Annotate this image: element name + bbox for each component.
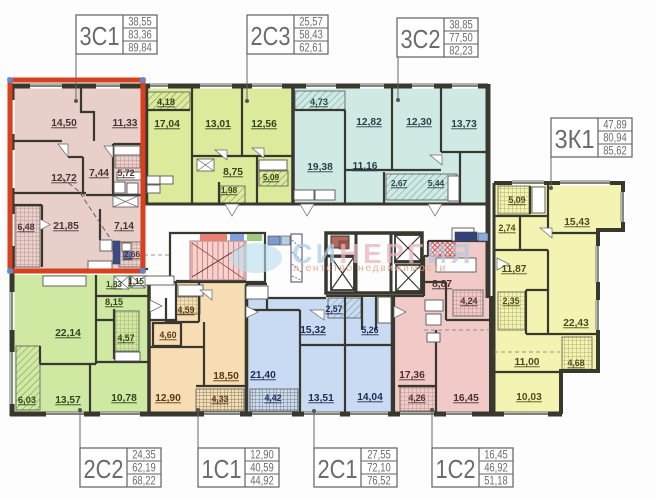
- svg-text:89,84: 89,84: [128, 43, 152, 55]
- svg-text:2C1: 2C1: [318, 454, 358, 484]
- svg-text:1,83: 1,83: [106, 280, 122, 289]
- svg-text:7,44: 7,44: [89, 168, 109, 179]
- svg-text:2C2: 2C2: [84, 454, 124, 484]
- svg-text:15,43: 15,43: [564, 217, 590, 228]
- svg-text:77,50: 77,50: [449, 33, 473, 45]
- svg-text:25,57: 25,57: [299, 17, 323, 29]
- svg-text:11,33: 11,33: [113, 118, 138, 129]
- svg-text:22,43: 22,43: [563, 318, 589, 329]
- svg-text:72,10: 72,10: [367, 463, 391, 475]
- svg-text:5,09: 5,09: [508, 195, 525, 205]
- svg-text:13,01: 13,01: [205, 119, 231, 130]
- svg-text:38,85: 38,85: [449, 20, 473, 32]
- svg-text:8,15: 8,15: [105, 297, 123, 307]
- svg-text:46,92: 46,92: [484, 463, 508, 475]
- svg-text:1,15: 1,15: [128, 277, 144, 286]
- svg-text:2,57: 2,57: [325, 304, 342, 314]
- svg-text:16,45: 16,45: [453, 393, 479, 404]
- svg-text:6,48: 6,48: [17, 222, 34, 232]
- svg-text:7,14: 7,14: [114, 221, 134, 232]
- svg-text:83,36: 83,36: [128, 30, 152, 42]
- svg-text:19,38: 19,38: [307, 162, 333, 173]
- svg-text:18,50: 18,50: [213, 371, 239, 382]
- svg-text:4,24: 4,24: [460, 296, 477, 306]
- svg-text:82,23: 82,23: [449, 46, 473, 58]
- svg-text:12,90: 12,90: [250, 450, 274, 462]
- svg-text:12,90: 12,90: [155, 393, 181, 404]
- svg-text:12,56: 12,56: [251, 119, 277, 130]
- svg-text:12,82: 12,82: [356, 117, 382, 128]
- svg-text:3C1: 3C1: [80, 21, 120, 51]
- svg-text:8,87: 8,87: [432, 279, 452, 290]
- svg-text:47,89: 47,89: [603, 120, 627, 132]
- svg-text:4,68: 4,68: [567, 358, 584, 368]
- svg-text:12,72: 12,72: [51, 173, 77, 184]
- svg-text:13,57: 13,57: [55, 395, 81, 406]
- svg-text:4,33: 4,33: [211, 394, 228, 404]
- svg-text:27,55: 27,55: [367, 450, 391, 462]
- svg-text:6,03: 6,03: [18, 395, 36, 405]
- svg-text:12,30: 12,30: [406, 117, 432, 128]
- svg-text:21,85: 21,85: [53, 221, 79, 232]
- svg-text:4,18: 4,18: [157, 97, 175, 107]
- svg-text:13,73: 13,73: [451, 119, 477, 130]
- svg-text:4,73: 4,73: [310, 97, 328, 107]
- svg-text:3C2: 3C2: [401, 24, 441, 54]
- svg-text:10,03: 10,03: [516, 392, 542, 403]
- svg-text:5,72: 5,72: [117, 168, 134, 178]
- svg-text:85,62: 85,62: [603, 146, 627, 158]
- svg-text:1,98: 1,98: [221, 185, 238, 195]
- svg-text:58,43: 58,43: [299, 30, 323, 42]
- svg-text:22,14: 22,14: [55, 328, 81, 339]
- svg-text:11,00: 11,00: [515, 357, 540, 368]
- svg-text:8,75: 8,75: [223, 167, 243, 178]
- svg-text:2,35: 2,35: [502, 296, 519, 306]
- svg-text:62,61: 62,61: [299, 43, 323, 55]
- svg-text:68,22: 68,22: [132, 476, 156, 488]
- svg-text:21,40: 21,40: [250, 370, 276, 381]
- svg-text:51,18: 51,18: [484, 476, 508, 488]
- svg-text:2,66: 2,66: [124, 249, 141, 259]
- svg-text:10,78: 10,78: [111, 393, 137, 404]
- svg-text:44,92: 44,92: [250, 476, 274, 488]
- svg-text:3К1: 3К1: [555, 124, 595, 154]
- svg-text:1C1: 1C1: [202, 454, 242, 484]
- svg-text:2C3: 2C3: [251, 21, 291, 51]
- svg-text:15,32: 15,32: [300, 325, 326, 336]
- svg-text:4,42: 4,42: [264, 393, 281, 403]
- svg-text:16,45: 16,45: [484, 450, 508, 462]
- svg-text:4,59: 4,59: [177, 305, 194, 315]
- svg-text:14,04: 14,04: [357, 392, 383, 403]
- svg-text:2,74: 2,74: [498, 223, 515, 233]
- svg-text:24,35: 24,35: [132, 450, 156, 462]
- svg-text:17,36: 17,36: [399, 370, 425, 381]
- svg-text:11,16: 11,16: [353, 161, 378, 172]
- svg-text:40,59: 40,59: [250, 463, 274, 475]
- svg-text:5,09: 5,09: [263, 172, 280, 182]
- svg-text:17,04: 17,04: [154, 119, 180, 130]
- svg-text:4,60: 4,60: [159, 330, 176, 340]
- svg-text:2,67: 2,67: [391, 178, 408, 188]
- svg-text:11,87: 11,87: [502, 264, 527, 275]
- svg-text:38,55: 38,55: [128, 17, 152, 29]
- svg-text:14,50: 14,50: [51, 118, 77, 129]
- svg-text:5,26: 5,26: [361, 325, 378, 335]
- svg-text:80,94: 80,94: [603, 133, 627, 145]
- svg-text:62,19: 62,19: [132, 463, 156, 475]
- svg-text:4,57: 4,57: [117, 333, 134, 343]
- svg-text:76,52: 76,52: [367, 476, 391, 488]
- svg-text:13,51: 13,51: [308, 393, 334, 404]
- svg-text:4,26: 4,26: [408, 393, 425, 403]
- svg-text:агентство недвижимости: агентство недвижимости: [293, 262, 447, 274]
- svg-text:1C2: 1C2: [436, 454, 476, 484]
- svg-text:5,44: 5,44: [428, 178, 445, 188]
